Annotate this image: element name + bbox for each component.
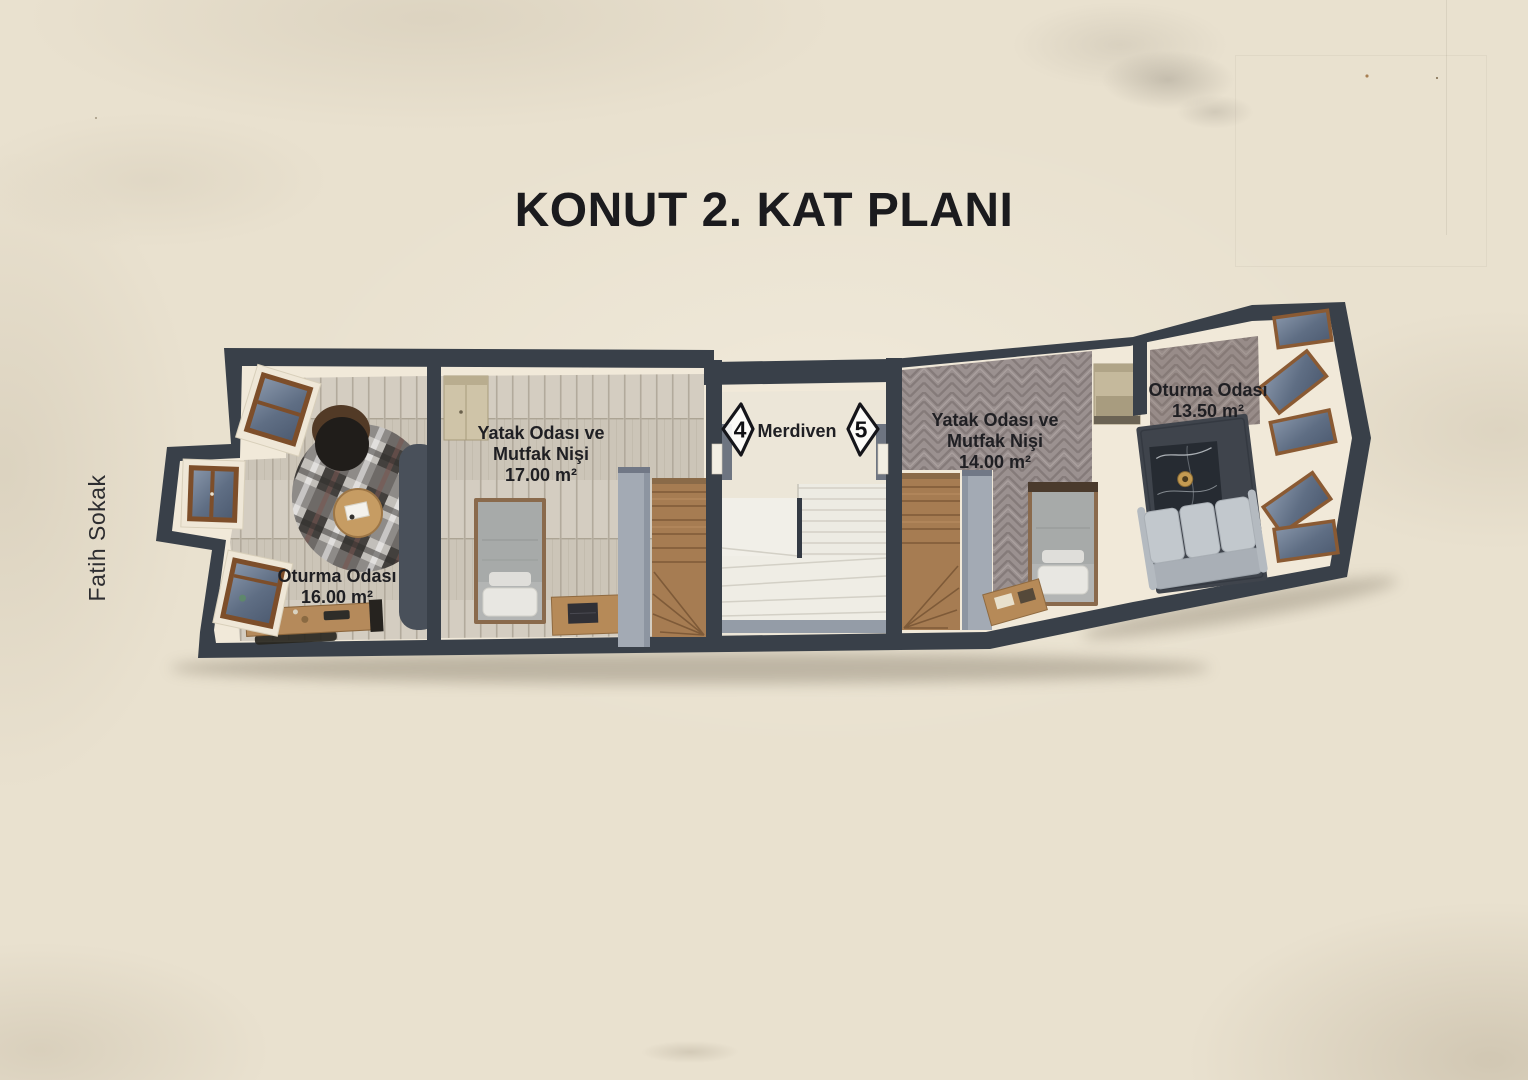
- room-area: 16.00 m²: [277, 587, 396, 608]
- room-area: 14.00 m²: [931, 452, 1058, 473]
- room-name: Oturma Odası: [1148, 380, 1267, 401]
- stairwell-right-wall: [886, 358, 902, 650]
- marble-coffee-table-icon: [1149, 441, 1222, 513]
- white-stairs-icon: [722, 484, 886, 633]
- room-area: 17.00 m²: [477, 465, 604, 486]
- room-name-line1: Yatak Odası ve: [931, 410, 1058, 431]
- staircase-core: [706, 358, 902, 650]
- room-name-line2: Mutfak Nişi: [477, 444, 604, 465]
- room-label-living-left: Oturma Odası 16.00 m²: [277, 566, 396, 608]
- unit-marker-5-number: 5: [855, 417, 868, 444]
- wood-stairs-unit4-icon: [652, 478, 706, 637]
- room-label-living-right: Oturma Odası 13.50 m²: [1148, 380, 1267, 422]
- room-name-line1: Yatak Odası ve: [477, 423, 604, 444]
- room-label-staircase: Merdiven: [757, 421, 836, 442]
- stairwell-left-wall: [706, 360, 722, 650]
- room-name: Merdiven: [757, 421, 836, 442]
- bed-icon: [474, 498, 546, 624]
- window-top-right-icon: [1274, 310, 1332, 347]
- round-table-icon: [334, 489, 382, 537]
- privacy-wall-left: [618, 467, 650, 647]
- room-label-bedroom-left: Yatak Odası ve Mutfak Nişi 17.00 m²: [477, 423, 604, 486]
- desk-icon: [551, 595, 624, 635]
- room-area: 13.50 m²: [1148, 401, 1267, 422]
- window-left-bay-icon: [181, 459, 245, 529]
- unit-marker-4-number: 4: [734, 417, 747, 444]
- floor-plan-drawing: [0, 0, 1528, 1080]
- partition-wall-1: [427, 360, 441, 650]
- floor-plan-page: KONUT 2. KAT PLANI Fatih Sokak Oturma Od…: [0, 0, 1528, 1080]
- room-label-bedroom-right: Yatak Odası ve Mutfak Nişi 14.00 m²: [931, 410, 1058, 473]
- room-bedroom-left: [441, 374, 706, 647]
- page-title: KONUT 2. KAT PLANI: [0, 183, 1528, 238]
- partition-wall-2: [1133, 338, 1147, 416]
- wood-stairs-unit5-icon: [902, 473, 960, 630]
- street-label: Fatih Sokak: [32, 473, 162, 603]
- room-name-line2: Mutfak Nişi: [931, 431, 1058, 452]
- room-name: Oturma Odası: [277, 566, 396, 587]
